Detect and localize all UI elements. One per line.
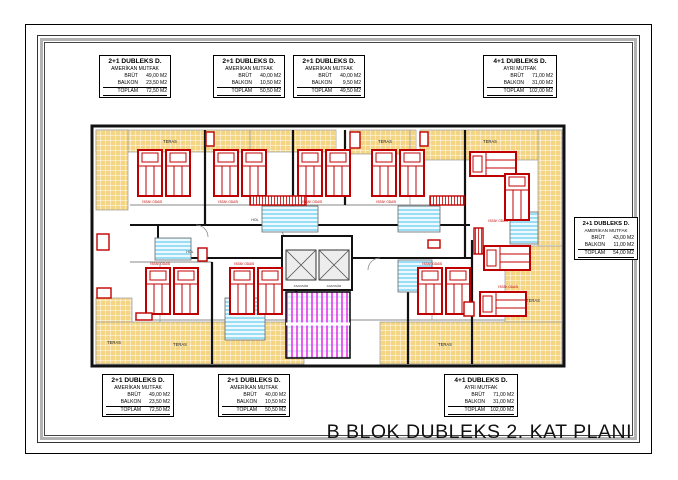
balkon-row: BALKON10,50 M2 <box>217 80 281 88</box>
brut-row: BRÜT71,00 M2 <box>487 73 553 80</box>
info-box-bottom-3: 4+1 DUBLEKS D. AYRI MUTFAK BRÜT71,00 M2 … <box>444 374 518 417</box>
plan-title: B BLOK DUBLEKS 2. KAT PLANI <box>327 421 632 444</box>
balkon-row: BALKON11,00 M2 <box>578 242 634 250</box>
balkon-row: BALKON31,00 M2 <box>487 80 553 88</box>
bedroom-label: YATAK ODASI <box>376 200 397 204</box>
info-box-top-1: 2+1 DUBLEKS D. AMERİKAN MUTFAK BRÜT49,00… <box>99 55 171 98</box>
elevator-label: ASANSÖR <box>327 284 343 288</box>
elevator-label: ASANSÖR <box>294 284 310 288</box>
toplam-row: TOPLAM72,50 M2 <box>103 88 167 96</box>
toplam-row: TOPLAM102,00 M2 <box>487 88 553 96</box>
unit-type: 4+1 DUBLEKS D. <box>487 58 553 66</box>
balkon-row: BALKON31,00 M2 <box>448 399 514 407</box>
teras-label: TERAS <box>483 139 497 144</box>
toplam-row: TOPLAM54,00 M2 <box>578 250 634 258</box>
toplam-row: TOPLAM102,00 M2 <box>448 407 514 415</box>
balkon-row: BALKON10,50 M2 <box>222 399 286 407</box>
teras-label: TERAS <box>173 342 187 347</box>
balkon-row: BALKON23,50 M2 <box>103 80 167 88</box>
hall-label: HOL <box>186 250 193 254</box>
balkon-row: BALKON9,50 M2 <box>297 80 361 88</box>
brut-row: BRÜT40,00 M2 <box>217 73 281 80</box>
info-box-bottom-2: 2+1 DUBLEKS D. AMERİKAN MUTFAK BRÜT40,00… <box>218 374 290 417</box>
hall-label: HOL <box>251 218 258 222</box>
brut-row: BRÜT49,00 M2 <box>103 73 167 80</box>
info-box-top-4: 4+1 DUBLEKS D. AYRI MUTFAK BRÜT71,00 M2 … <box>483 55 557 98</box>
brut-row: BRÜT40,00 M2 <box>222 392 286 399</box>
unit-type: 2+1 DUBLEKS D. <box>103 58 167 66</box>
bedroom-label: YATAK ODASI <box>498 285 519 289</box>
bedroom-label: YATAK ODASI <box>142 200 163 204</box>
toplam-row: TOPLAM50,50 M2 <box>217 88 281 96</box>
info-box-right: 2+1 DUBLEKS D. AMERİKAN MUTFAK BRÜT43,00… <box>574 217 638 260</box>
unit-type: 2+1 DUBLEKS D. <box>106 377 170 385</box>
core-elevators: ASANSÖR ASANSÖR <box>282 236 352 290</box>
info-box-bottom-1: 2+1 DUBLEKS D. AMERİKAN MUTFAK BRÜT49,00… <box>102 374 174 417</box>
brut-row: BRÜT71,00 M2 <box>448 392 514 399</box>
drawing-sheet: BestProperty <box>0 0 678 480</box>
bedroom-label: YATAK ODASI <box>302 200 323 204</box>
toplam-row: TOPLAM49,50 M2 <box>297 88 361 96</box>
toplam-row: TOPLAM72,50 M2 <box>106 407 170 415</box>
teras-label: TERAS <box>378 139 392 144</box>
unit-type: 2+1 DUBLEKS D. <box>217 58 281 66</box>
bedroom-label: YATAK ODASI <box>150 262 171 266</box>
unit-type: 4+1 DUBLEKS D. <box>448 377 514 385</box>
unit-type: 2+1 DUBLEKS D. <box>222 377 286 385</box>
teras-label: TERAS <box>438 342 452 347</box>
brut-row: BRÜT40,00 M2 <box>297 73 361 80</box>
balkon-row: BALKON23,50 M2 <box>106 399 170 407</box>
brut-row: BRÜT43,00 M2 <box>578 235 634 242</box>
info-box-top-3: 2+1 DUBLEKS D. AMERİKAN MUTFAK BRÜT40,00… <box>293 55 365 98</box>
bedroom-label: YATAK ODASI <box>488 219 509 223</box>
bedroom-label: YATAK ODASI <box>234 262 255 266</box>
teras-label: TERAS <box>526 298 540 303</box>
unit-type: 2+1 DUBLEKS D. <box>297 58 361 66</box>
unit-type: 2+1 DUBLEKS D. <box>578 220 634 228</box>
bedroom-label: YATAK ODASI <box>422 262 443 266</box>
info-box-top-2: 2+1 DUBLEKS D. AMERİKAN MUTFAK BRÜT40,00… <box>213 55 285 98</box>
bedroom-label: YATAK ODASI <box>218 200 239 204</box>
brut-row: BRÜT49,00 M2 <box>106 392 170 399</box>
central-stairs <box>286 292 350 358</box>
teras-label: TERAS <box>107 340 121 345</box>
teras-label: TERAS <box>163 139 177 144</box>
toplam-row: TOPLAM50,50 M2 <box>222 407 286 415</box>
